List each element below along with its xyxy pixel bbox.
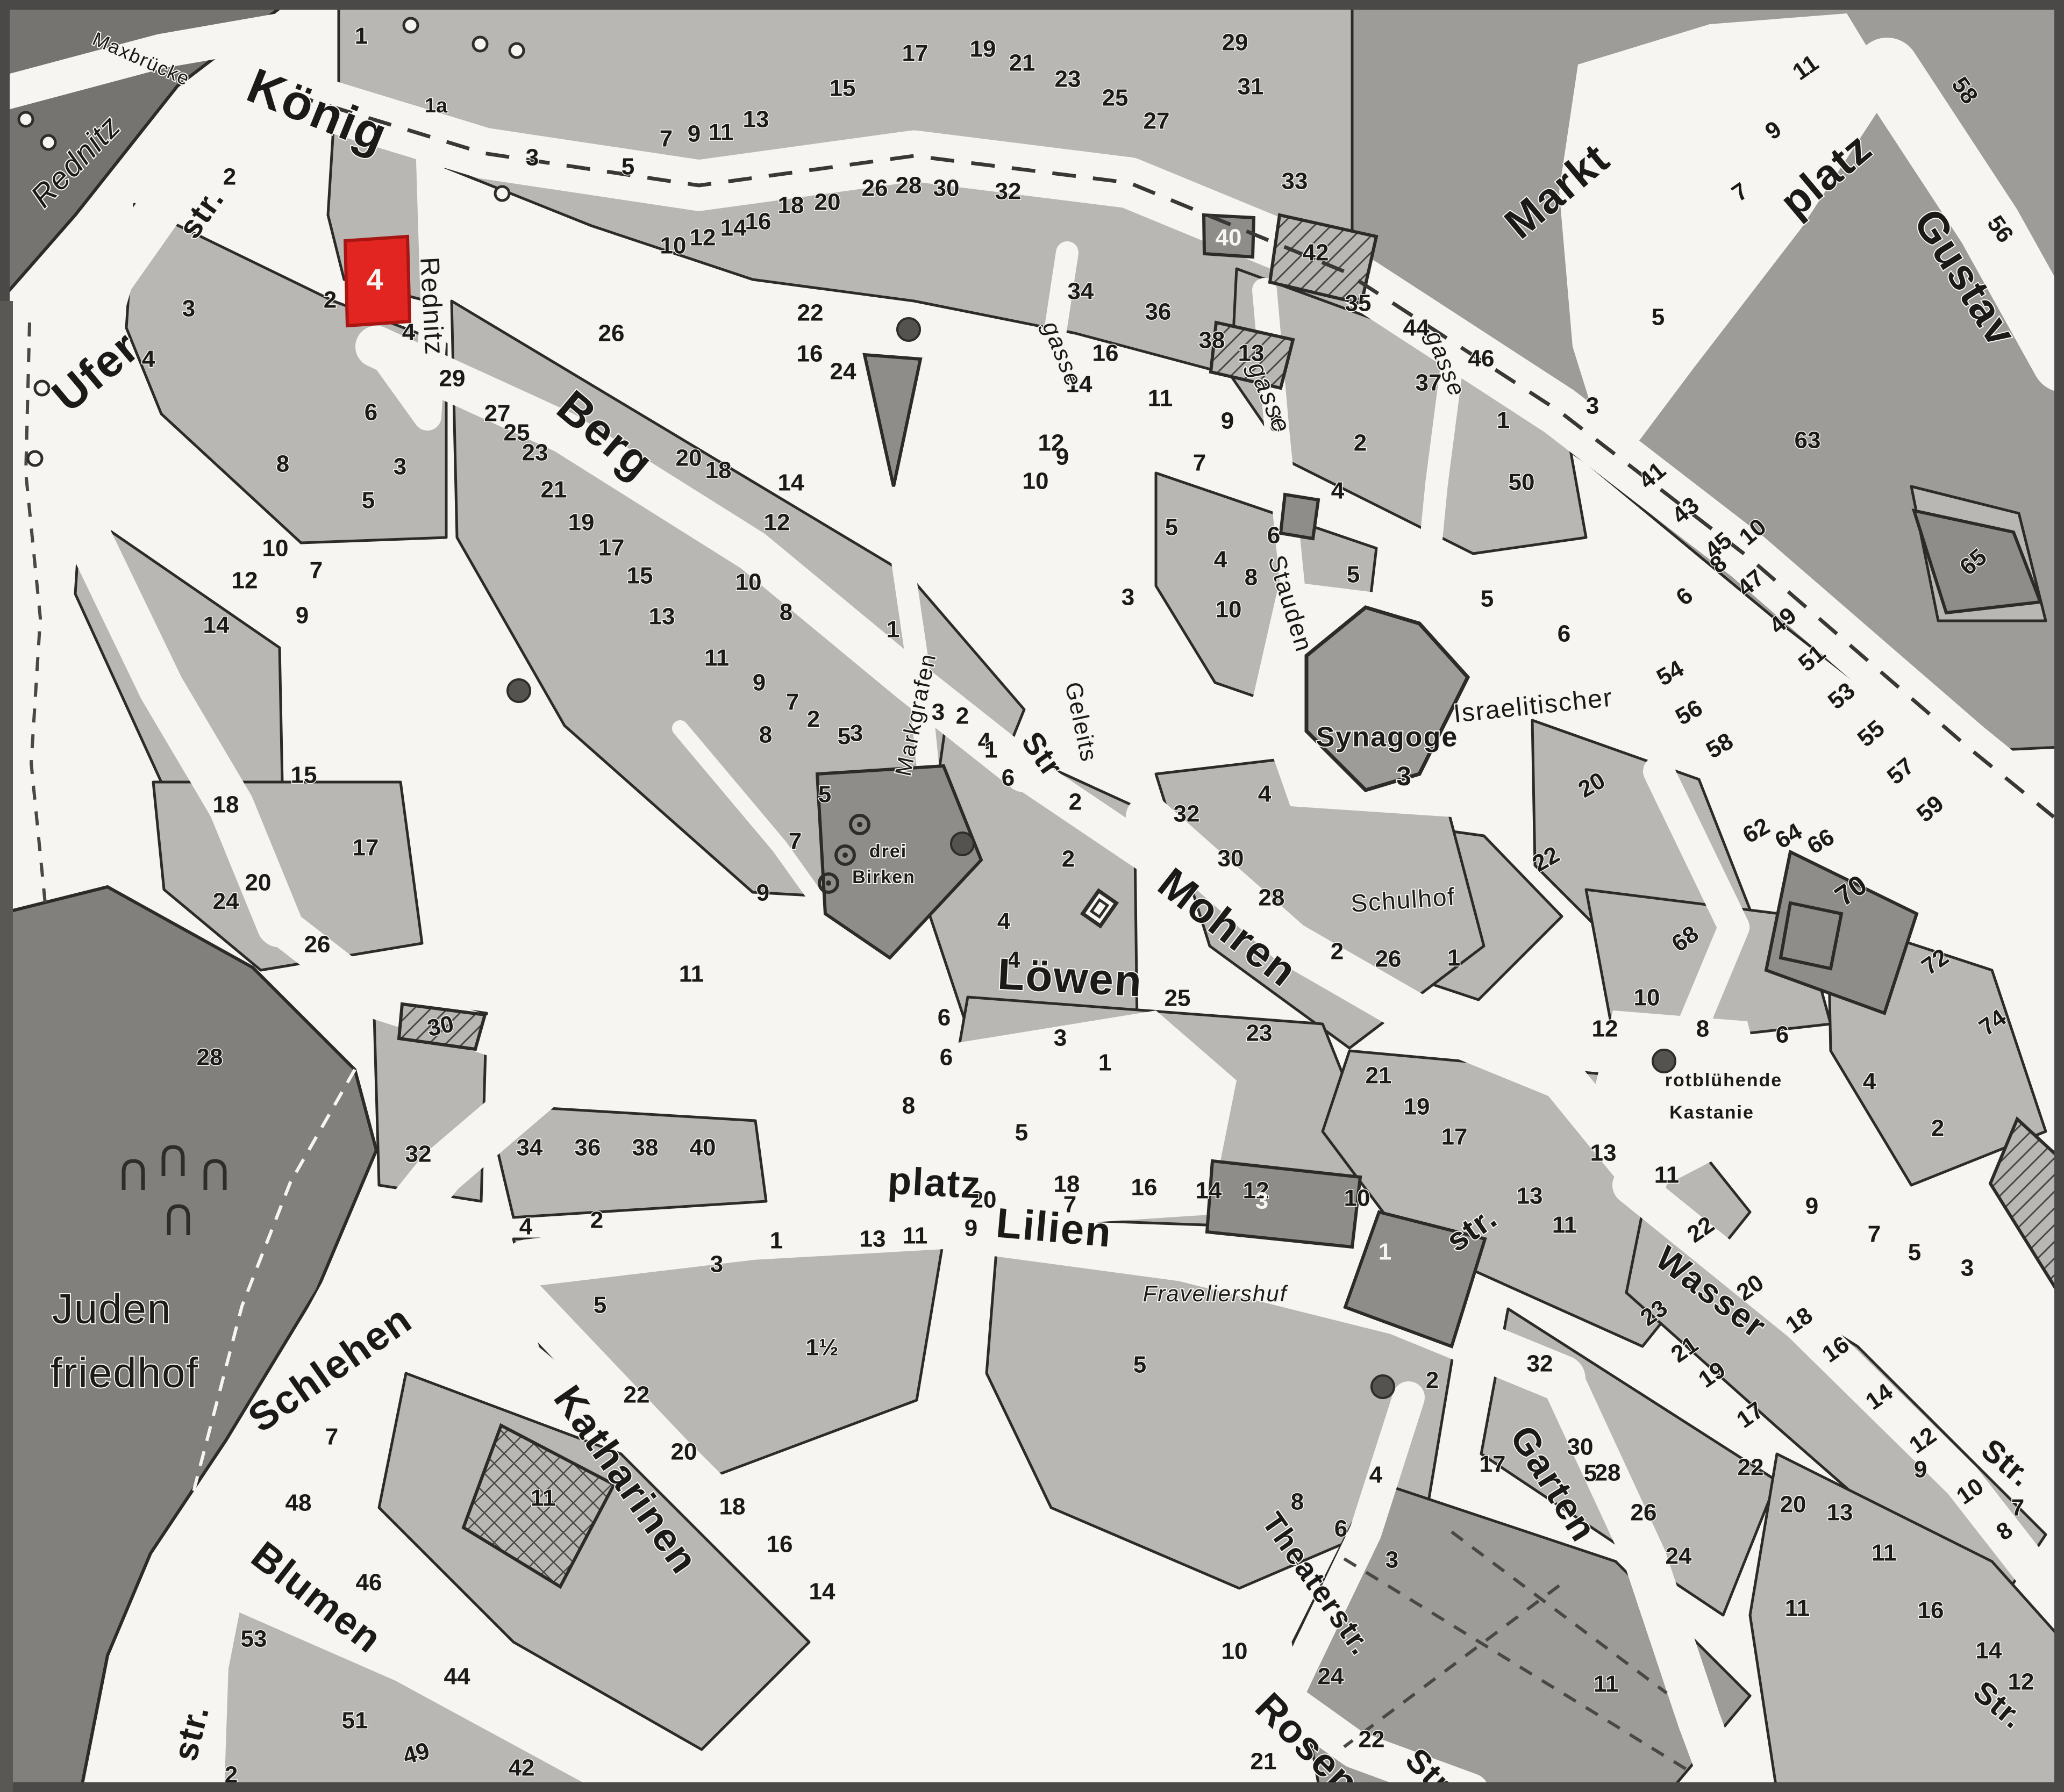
house-number: 19 xyxy=(1404,1094,1430,1120)
house-number: 3 xyxy=(1255,1188,1268,1214)
house-number: 16 xyxy=(745,209,772,235)
house-number: 11 xyxy=(1872,1540,1897,1566)
house-number: 3 xyxy=(1122,584,1134,611)
house-number: 30 xyxy=(1567,1434,1594,1460)
house-number: 21 xyxy=(1251,1748,1277,1775)
house-number: 6 xyxy=(1558,621,1570,647)
house-number: 24 xyxy=(830,359,856,385)
house-number: 5 xyxy=(1481,586,1494,612)
house-number: 15 xyxy=(291,762,317,789)
house-number: 28 xyxy=(1259,885,1285,911)
house-number: 17 xyxy=(1480,1451,1506,1478)
house-number: 15 xyxy=(627,563,653,589)
house-number: 20 xyxy=(676,445,702,471)
house-number: 16 xyxy=(767,1531,793,1558)
tree-icon xyxy=(826,880,831,886)
house-number: 32 xyxy=(405,1141,432,1167)
map-label: Fraveliershuf xyxy=(1143,1281,1289,1306)
house-number: 4 xyxy=(1369,1462,1383,1488)
house-number: 22 xyxy=(1738,1454,1764,1481)
map-label: friedhof xyxy=(51,1349,199,1396)
house-number: 18 xyxy=(778,192,804,219)
boundary-stone-icon xyxy=(495,187,509,200)
house-number: 5 xyxy=(1347,562,1360,588)
house-number: 40 xyxy=(690,1135,716,1161)
house-number: 3 xyxy=(182,296,195,322)
house-number: 3 xyxy=(850,720,863,747)
house-number: 4 xyxy=(519,1214,533,1240)
house-number: 4 xyxy=(997,908,1011,935)
scan-edge-left xyxy=(0,301,13,1792)
house-number: 7 xyxy=(786,689,799,715)
house-number: 1 xyxy=(355,23,368,49)
house-number: 19 xyxy=(568,510,595,536)
house-number: 29 xyxy=(439,365,466,392)
house-number: 1 xyxy=(984,737,997,763)
house-number: 23 xyxy=(522,440,548,466)
house-number: 2 xyxy=(590,1207,603,1234)
house-number: 8 xyxy=(759,722,772,748)
house-number: 1 xyxy=(770,1228,783,1254)
house-number: 16 xyxy=(797,341,823,367)
house-number: 32 xyxy=(1174,801,1200,827)
house-number: 44 xyxy=(444,1664,470,1690)
map-label: Lilien xyxy=(994,1199,1114,1256)
highlighted-parcel-number: 4 xyxy=(366,262,383,296)
map-label: drei xyxy=(869,841,907,862)
house-number: 3 xyxy=(1586,393,1599,419)
house-number: 2 xyxy=(1062,846,1075,872)
house-number: 16 xyxy=(1918,1597,1944,1624)
house-number: 3 xyxy=(1385,1547,1398,1573)
house-number: 6 xyxy=(1002,765,1015,791)
house-number: 5 xyxy=(1133,1352,1146,1378)
house-number: 1a xyxy=(425,95,448,117)
house-number: 2 xyxy=(1931,1115,1944,1142)
house-number: 1 xyxy=(1497,407,1510,434)
house-number: 12 xyxy=(690,225,716,251)
house-number: 9 xyxy=(1914,1457,1927,1483)
house-number: 11 xyxy=(1594,1671,1619,1697)
house-number: 20 xyxy=(245,870,272,896)
house-number: 8 xyxy=(780,599,792,626)
house-number: 51 xyxy=(342,1708,368,1734)
house-number: 24 xyxy=(213,888,239,915)
house-number: 2 xyxy=(956,703,969,729)
house-number: 18 xyxy=(719,1494,746,1520)
house-number: 5 xyxy=(1908,1239,1921,1266)
house-number: 5 xyxy=(622,154,634,180)
house-number: 20 xyxy=(1780,1492,1806,1518)
house-number: 50 xyxy=(1509,469,1535,496)
tree-filled-icon xyxy=(1372,1375,1394,1398)
house-number: 12 xyxy=(1592,1016,1618,1042)
house-number: 2 xyxy=(1426,1367,1439,1394)
map-scan-page: 4 11a35791113151719212325272931333537135… xyxy=(0,0,2064,1792)
house-number: 18 xyxy=(213,792,239,818)
house-number: 5 xyxy=(594,1292,606,1318)
house-number: 31 xyxy=(1238,74,1264,100)
house-number: 20 xyxy=(671,1439,697,1465)
house-number: 8 xyxy=(1696,1016,1709,1042)
house-number: 7 xyxy=(1868,1221,1881,1248)
house-number: 32 xyxy=(995,178,1022,205)
house-number: 57 xyxy=(1882,752,1919,790)
house-number: 26 xyxy=(598,320,625,347)
house-number: 10 xyxy=(1634,985,1660,1011)
house-number: 38 xyxy=(1199,327,1225,354)
house-number: 10 xyxy=(1222,1638,1248,1665)
house-number: 5 xyxy=(1015,1120,1028,1146)
house-number: 14 xyxy=(720,215,747,241)
house-number: 2 xyxy=(807,706,820,733)
house-number: 46 xyxy=(356,1569,382,1596)
house-number: 5 xyxy=(818,782,831,808)
house-number: 9 xyxy=(1221,408,1234,434)
house-number: 11 xyxy=(531,1485,556,1511)
house-number: 5 xyxy=(1165,514,1178,541)
house-number: 20 xyxy=(815,189,841,216)
house-number: 7 xyxy=(2011,1495,2024,1521)
house-number: 14 xyxy=(203,612,230,639)
house-number: 22 xyxy=(1359,1726,1385,1753)
tree-filled-icon xyxy=(1653,1050,1675,1072)
house-number: 11 xyxy=(709,119,734,146)
house-number: 48 xyxy=(285,1490,312,1516)
house-number: 59 xyxy=(1912,790,1949,827)
house-number: 3 xyxy=(1054,1025,1067,1051)
map-label: Kastanie xyxy=(1669,1102,1754,1123)
house-number: 3 xyxy=(394,454,406,480)
house-number: 11 xyxy=(704,645,730,671)
house-number: 11 xyxy=(1148,385,1173,412)
house-number: 6 xyxy=(365,399,377,426)
house-number: 22 xyxy=(624,1382,650,1408)
house-number: 17 xyxy=(353,835,379,861)
house-number: 10 xyxy=(1023,468,1049,494)
house-number: 30 xyxy=(425,1010,456,1042)
house-number: 5 xyxy=(362,488,375,514)
boundary-stone-icon xyxy=(510,44,524,58)
tree-filled-icon xyxy=(951,833,974,855)
house-number: 11 xyxy=(679,961,704,987)
house-number: 11 xyxy=(1785,1595,1810,1622)
house-number: 16 xyxy=(1131,1174,1158,1201)
house-number: 25 xyxy=(1102,85,1129,111)
house-number: 9 xyxy=(1805,1193,1818,1220)
house-number: 53 xyxy=(241,1626,267,1652)
highlighted-parcel: 4 xyxy=(345,236,410,326)
house-number: 42 xyxy=(1303,240,1329,266)
house-number: 7 xyxy=(325,1424,338,1450)
house-number: 2 xyxy=(1331,938,1344,965)
house-number: 23 xyxy=(1055,66,1081,92)
house-number: 4 xyxy=(1258,781,1272,807)
house-number: 12 xyxy=(764,510,790,536)
tree-filled-icon xyxy=(897,318,920,341)
house-number: 26 xyxy=(1375,946,1402,972)
map-label: platz xyxy=(887,1159,982,1207)
house-number: 18 xyxy=(705,457,732,484)
boundary-stone-icon xyxy=(41,135,55,149)
dark-building xyxy=(1281,494,1318,539)
house-number: 1 xyxy=(1447,945,1460,971)
house-number: 6 xyxy=(938,1005,951,1031)
house-number: 33 xyxy=(1282,168,1308,195)
house-number: 40 xyxy=(1216,225,1242,251)
house-number: 27 xyxy=(1144,108,1170,134)
house-number: 9 xyxy=(756,880,769,906)
house-number: 6 xyxy=(940,1044,953,1071)
house-number: 7 xyxy=(789,828,802,855)
boundary-stone-icon xyxy=(19,112,33,126)
house-number: 6 xyxy=(1334,1516,1347,1542)
house-number: 17 xyxy=(902,40,929,67)
house-number: 28 xyxy=(197,1044,223,1071)
house-number: 6 xyxy=(1671,582,1698,611)
house-number: 56 xyxy=(1671,694,1707,730)
house-number: 15 xyxy=(830,75,856,102)
house-number: 14 xyxy=(778,470,804,496)
house-number: 35 xyxy=(1345,290,1372,317)
map-label: Juden xyxy=(52,1285,172,1332)
house-number: 13 xyxy=(743,106,769,133)
house-number: 23 xyxy=(1246,1020,1273,1046)
house-number: 7 xyxy=(1193,450,1206,476)
house-number: 1½ xyxy=(805,1335,838,1361)
house-number: 24 xyxy=(1318,1664,1344,1690)
house-number: 8 xyxy=(276,451,289,477)
house-number: 34 xyxy=(517,1135,543,1161)
house-number: 13 xyxy=(1590,1140,1617,1166)
house-number: 16 xyxy=(1092,340,1119,367)
house-number: 64 xyxy=(1770,818,1806,854)
house-number: 19 xyxy=(970,36,996,62)
house-number: 5 xyxy=(838,723,851,750)
tree-icon xyxy=(857,822,862,827)
house-number: 25 xyxy=(1165,985,1191,1012)
house-number: 53 xyxy=(1823,677,1860,714)
tree-filled-icon xyxy=(508,679,530,702)
house-number: 7 xyxy=(310,557,323,584)
map-label: rotblühende xyxy=(1665,1070,1782,1091)
house-number: 21 xyxy=(1366,1063,1392,1089)
house-number: 2 xyxy=(223,164,236,190)
tree-icon xyxy=(842,852,848,858)
map-label: Rednitz xyxy=(415,256,450,356)
house-number: 3 xyxy=(1961,1255,1974,1281)
boundary-stone-icon xyxy=(28,451,42,465)
house-number: 1 xyxy=(1379,1239,1391,1265)
house-number: 9 xyxy=(965,1215,977,1242)
house-number: 3 xyxy=(710,1251,723,1278)
house-number: 2 xyxy=(324,287,337,313)
house-number: 8 xyxy=(902,1093,915,1119)
house-number: 30 xyxy=(933,175,960,202)
house-number: 29 xyxy=(1222,30,1248,56)
house-number: 2 xyxy=(1354,430,1367,456)
house-number: 10 xyxy=(735,569,762,596)
house-number: 4 xyxy=(1214,547,1227,573)
house-number: 11 xyxy=(1552,1212,1577,1238)
house-number: 11 xyxy=(1654,1162,1680,1188)
map-label: Synagoge xyxy=(1316,722,1459,753)
house-number: 9 xyxy=(296,603,309,629)
house-number: 63 xyxy=(1795,427,1821,454)
house-number: 42 xyxy=(509,1755,535,1781)
house-number: 7 xyxy=(660,126,673,152)
house-number: 2 xyxy=(1069,789,1082,815)
boundary-stone-icon xyxy=(473,37,487,51)
house-number: 4 xyxy=(1331,478,1345,504)
house-number: 22 xyxy=(797,300,824,326)
house-number: 9 xyxy=(753,670,766,696)
house-number: 10 xyxy=(262,535,289,562)
map-label: Geleits xyxy=(1060,679,1102,764)
house-number: 3 xyxy=(932,699,945,726)
house-number: 8 xyxy=(1245,564,1258,591)
house-number: 10 xyxy=(660,233,687,259)
house-number: 4 xyxy=(1863,1069,1876,1095)
house-number: 9 xyxy=(688,121,701,147)
house-number: 14 xyxy=(1196,1178,1222,1204)
house-number: 26 xyxy=(1631,1500,1657,1526)
house-number: 8 xyxy=(1291,1489,1304,1515)
house-number: 62 xyxy=(1738,813,1774,849)
house-number: 46 xyxy=(1468,346,1495,372)
house-number: 10 xyxy=(1216,597,1242,623)
house-number: 21 xyxy=(541,477,567,503)
house-number: 12 xyxy=(2008,1669,2034,1695)
house-number: 54 xyxy=(1652,655,1688,691)
house-number: 14 xyxy=(809,1579,835,1605)
house-number: 36 xyxy=(575,1135,601,1161)
house-number: 66 xyxy=(1803,823,1839,859)
house-number: 38 xyxy=(632,1135,659,1161)
map-label: Löwen xyxy=(996,950,1144,1006)
house-number: 5 xyxy=(1584,1460,1597,1487)
house-number: 13 xyxy=(1517,1183,1543,1209)
house-number: 4 xyxy=(402,319,416,346)
house-number: 6 xyxy=(1267,522,1280,549)
map-label: 3 xyxy=(1396,761,1412,791)
house-number: 58 xyxy=(1702,728,1738,764)
house-number: 3 xyxy=(526,145,539,171)
house-number: 55 xyxy=(1853,715,1890,752)
house-number: 12 xyxy=(232,568,258,594)
house-number: 1 xyxy=(1098,1050,1111,1076)
house-number: 5 xyxy=(1652,304,1665,331)
house-number: 32 xyxy=(1527,1351,1553,1377)
house-number: 28 xyxy=(1595,1460,1621,1486)
house-number: 28 xyxy=(896,173,922,199)
house-number: 10 xyxy=(1344,1185,1370,1212)
dark-building xyxy=(1207,1161,1360,1247)
boundary-stone-icon xyxy=(404,18,418,32)
dark-building xyxy=(1781,903,1841,969)
house-number: 34 xyxy=(1068,278,1094,305)
house-number: 1 xyxy=(887,617,899,643)
house-number: 26 xyxy=(862,175,888,202)
house-number: 30 xyxy=(1218,845,1244,872)
house-number: 17 xyxy=(598,535,625,561)
house-number: 24 xyxy=(1666,1543,1692,1569)
house-number: 14 xyxy=(1976,1638,2002,1664)
house-number: 13 xyxy=(860,1226,886,1252)
dashed-boundary xyxy=(26,322,46,908)
house-number: 9 xyxy=(1056,444,1069,470)
city-map-canvas: 4 11a35791113151719212325272931333537135… xyxy=(0,0,2064,1792)
house-number: 17 xyxy=(1441,1124,1468,1150)
house-number: 36 xyxy=(1145,299,1172,325)
house-number: 11 xyxy=(903,1223,928,1249)
house-number: 13 xyxy=(1827,1500,1853,1526)
house-number: 21 xyxy=(1009,50,1035,76)
house-number: 6 xyxy=(1776,1022,1789,1048)
house-number: 26 xyxy=(304,931,331,958)
map-label: Birken xyxy=(852,867,916,887)
house-number: 13 xyxy=(649,604,675,630)
